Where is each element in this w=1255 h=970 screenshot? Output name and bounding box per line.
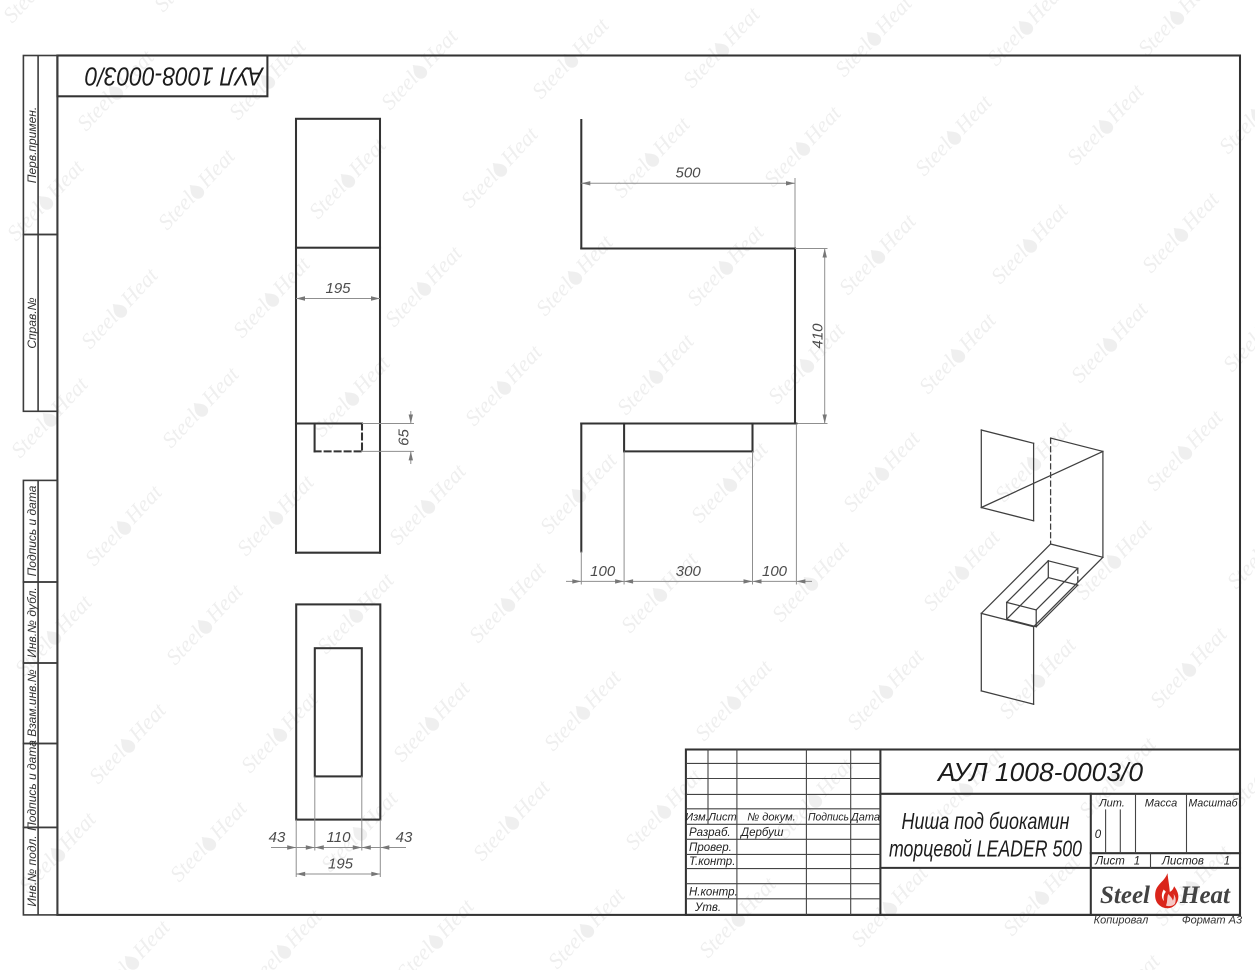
svg-text:Дата: Дата [849,811,880,823]
svg-text:Лит.: Лит. [1098,798,1125,810]
svg-text:195: 195 [328,856,354,873]
svg-text:1: 1 [1134,855,1140,867]
svg-text:Взам.инв.№: Взам.инв.№ [25,669,39,737]
svg-text:Листов: Листов [1161,855,1204,867]
svg-text:Лист: Лист [1094,855,1125,867]
svg-text:Масштаб: Масштаб [1189,798,1239,810]
svg-text:Лист: Лист [707,811,736,823]
svg-text:100: 100 [590,563,616,580]
svg-text:Steel: Steel [1100,882,1150,909]
svg-text:43: 43 [396,829,413,846]
svg-text:65: 65 [396,429,413,446]
svg-text:Подпись и дата: Подпись и дата [25,485,39,576]
svg-text:110: 110 [327,829,352,846]
svg-text:410: 410 [810,323,827,349]
svg-text:Heat: Heat [1179,882,1231,909]
svg-text:Копировал: Копировал [1094,915,1149,927]
svg-text:100: 100 [762,563,788,580]
svg-text:Подпись: Подпись [808,811,849,823]
svg-text:300: 300 [676,563,702,580]
svg-text:АУЛ 1008-0003/0: АУЛ 1008-0003/0 [85,62,265,92]
svg-text:Утв.: Утв. [694,902,721,914]
svg-text:Перв.примен.: Перв.примен. [25,107,39,183]
svg-text:Провер.: Провер. [689,842,732,854]
svg-text:Н.контр.: Н.контр. [689,886,738,898]
svg-text:0: 0 [1095,829,1102,841]
svg-text:Справ.№: Справ.№ [25,297,39,348]
svg-text:Ниша под биокамин: Ниша под биокамин [902,808,1070,834]
svg-text:Масса: Масса [1145,798,1178,810]
svg-text:торцевой LEADER 500: торцевой LEADER 500 [889,836,1082,862]
svg-text:АУЛ 1008-0003/0: АУЛ 1008-0003/0 [936,757,1144,787]
svg-text:Подпись и дата: Подпись и дата [25,740,39,831]
svg-text:500: 500 [675,165,701,182]
svg-text:195: 195 [325,280,351,297]
svg-text:Т.контр.: Т.контр. [689,856,735,868]
svg-text:Инв.№ дубл.: Инв.№ дубл. [25,587,39,657]
svg-text:Разраб.: Разраб. [689,827,731,839]
svg-text:№ докум.: № докум. [747,811,795,823]
svg-text:43: 43 [269,829,286,846]
svg-text:Формат А3: Формат А3 [1182,915,1243,927]
svg-text:Изм.: Изм. [685,811,708,823]
svg-text:1: 1 [1224,855,1230,867]
svg-text:Дербуш: Дербуш [739,827,784,839]
svg-text:Инв.№ подл.: Инв.№ подл. [25,835,39,906]
